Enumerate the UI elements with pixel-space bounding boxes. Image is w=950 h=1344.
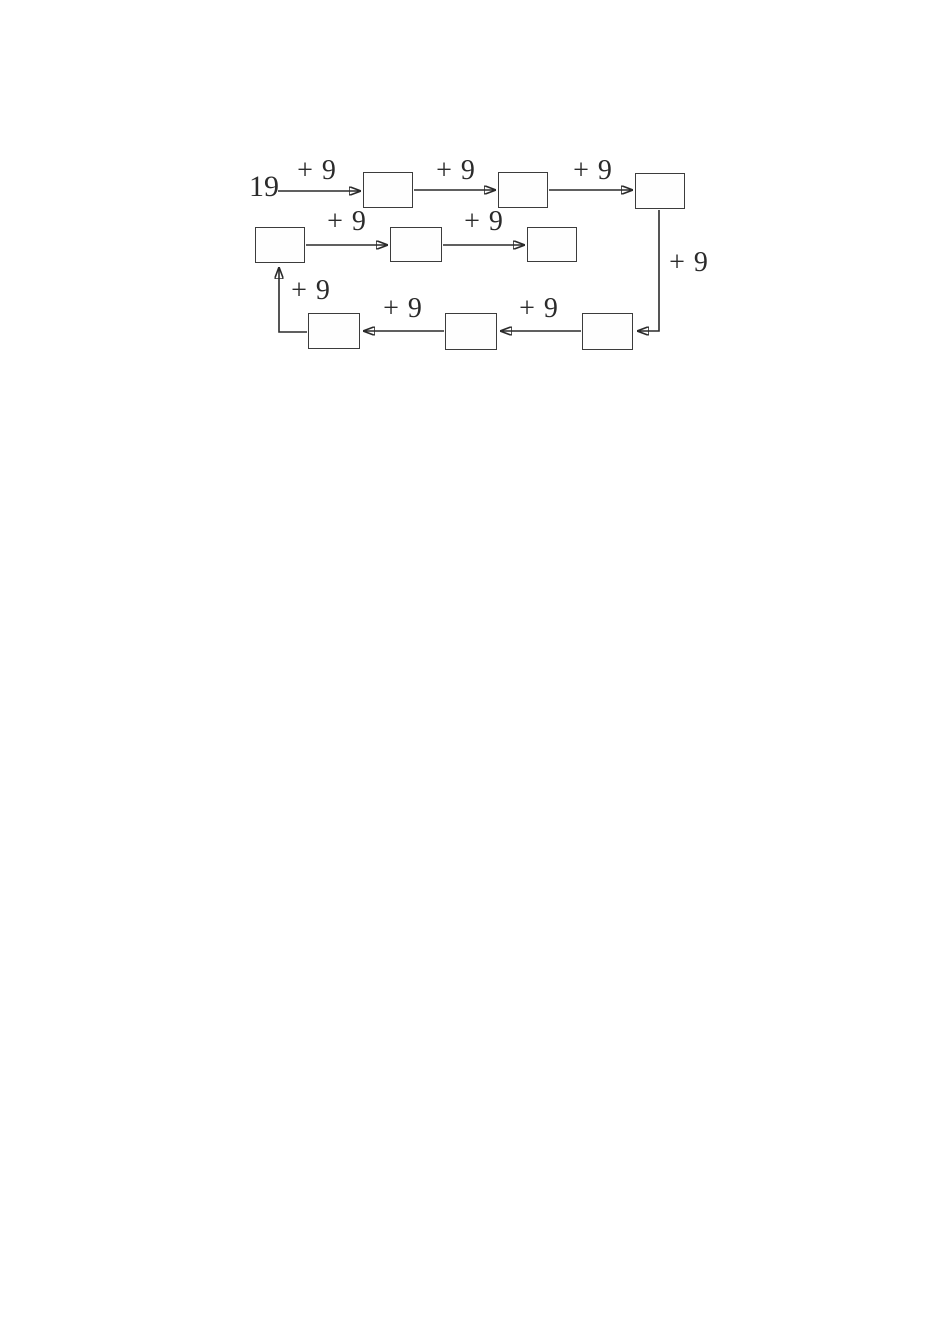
worksheet-page: 19 + 9 + 9 + 9 + 9 + 9 + 9 + 9 + 9 + 9 [0,0,950,1344]
op-label-1: + 9 [297,157,337,185]
arrow-box3-to-box4 [637,210,659,331]
answer-box-6[interactable] [308,313,360,349]
answer-box-9[interactable] [527,227,577,262]
answer-box-8[interactable] [390,227,442,262]
op-label-5: + 9 [519,295,559,323]
answer-box-5[interactable] [445,313,497,350]
op-label-3: + 9 [573,157,613,185]
op-label-7: + 9 [291,277,331,305]
start-value: 19 [249,172,279,202]
op-label-8: + 9 [327,208,367,236]
addition-chain-diagram: 19 + 9 + 9 + 9 + 9 + 9 + 9 + 9 + 9 + 9 [0,0,950,420]
answer-box-1[interactable] [363,172,413,208]
answer-box-3[interactable] [635,173,685,209]
answer-box-2[interactable] [498,172,548,208]
op-label-9: + 9 [464,208,504,236]
op-label-4: + 9 [669,249,709,277]
op-label-2: + 9 [436,157,476,185]
op-label-6: + 9 [383,295,423,323]
answer-box-7[interactable] [255,227,305,263]
answer-box-4[interactable] [582,313,633,350]
